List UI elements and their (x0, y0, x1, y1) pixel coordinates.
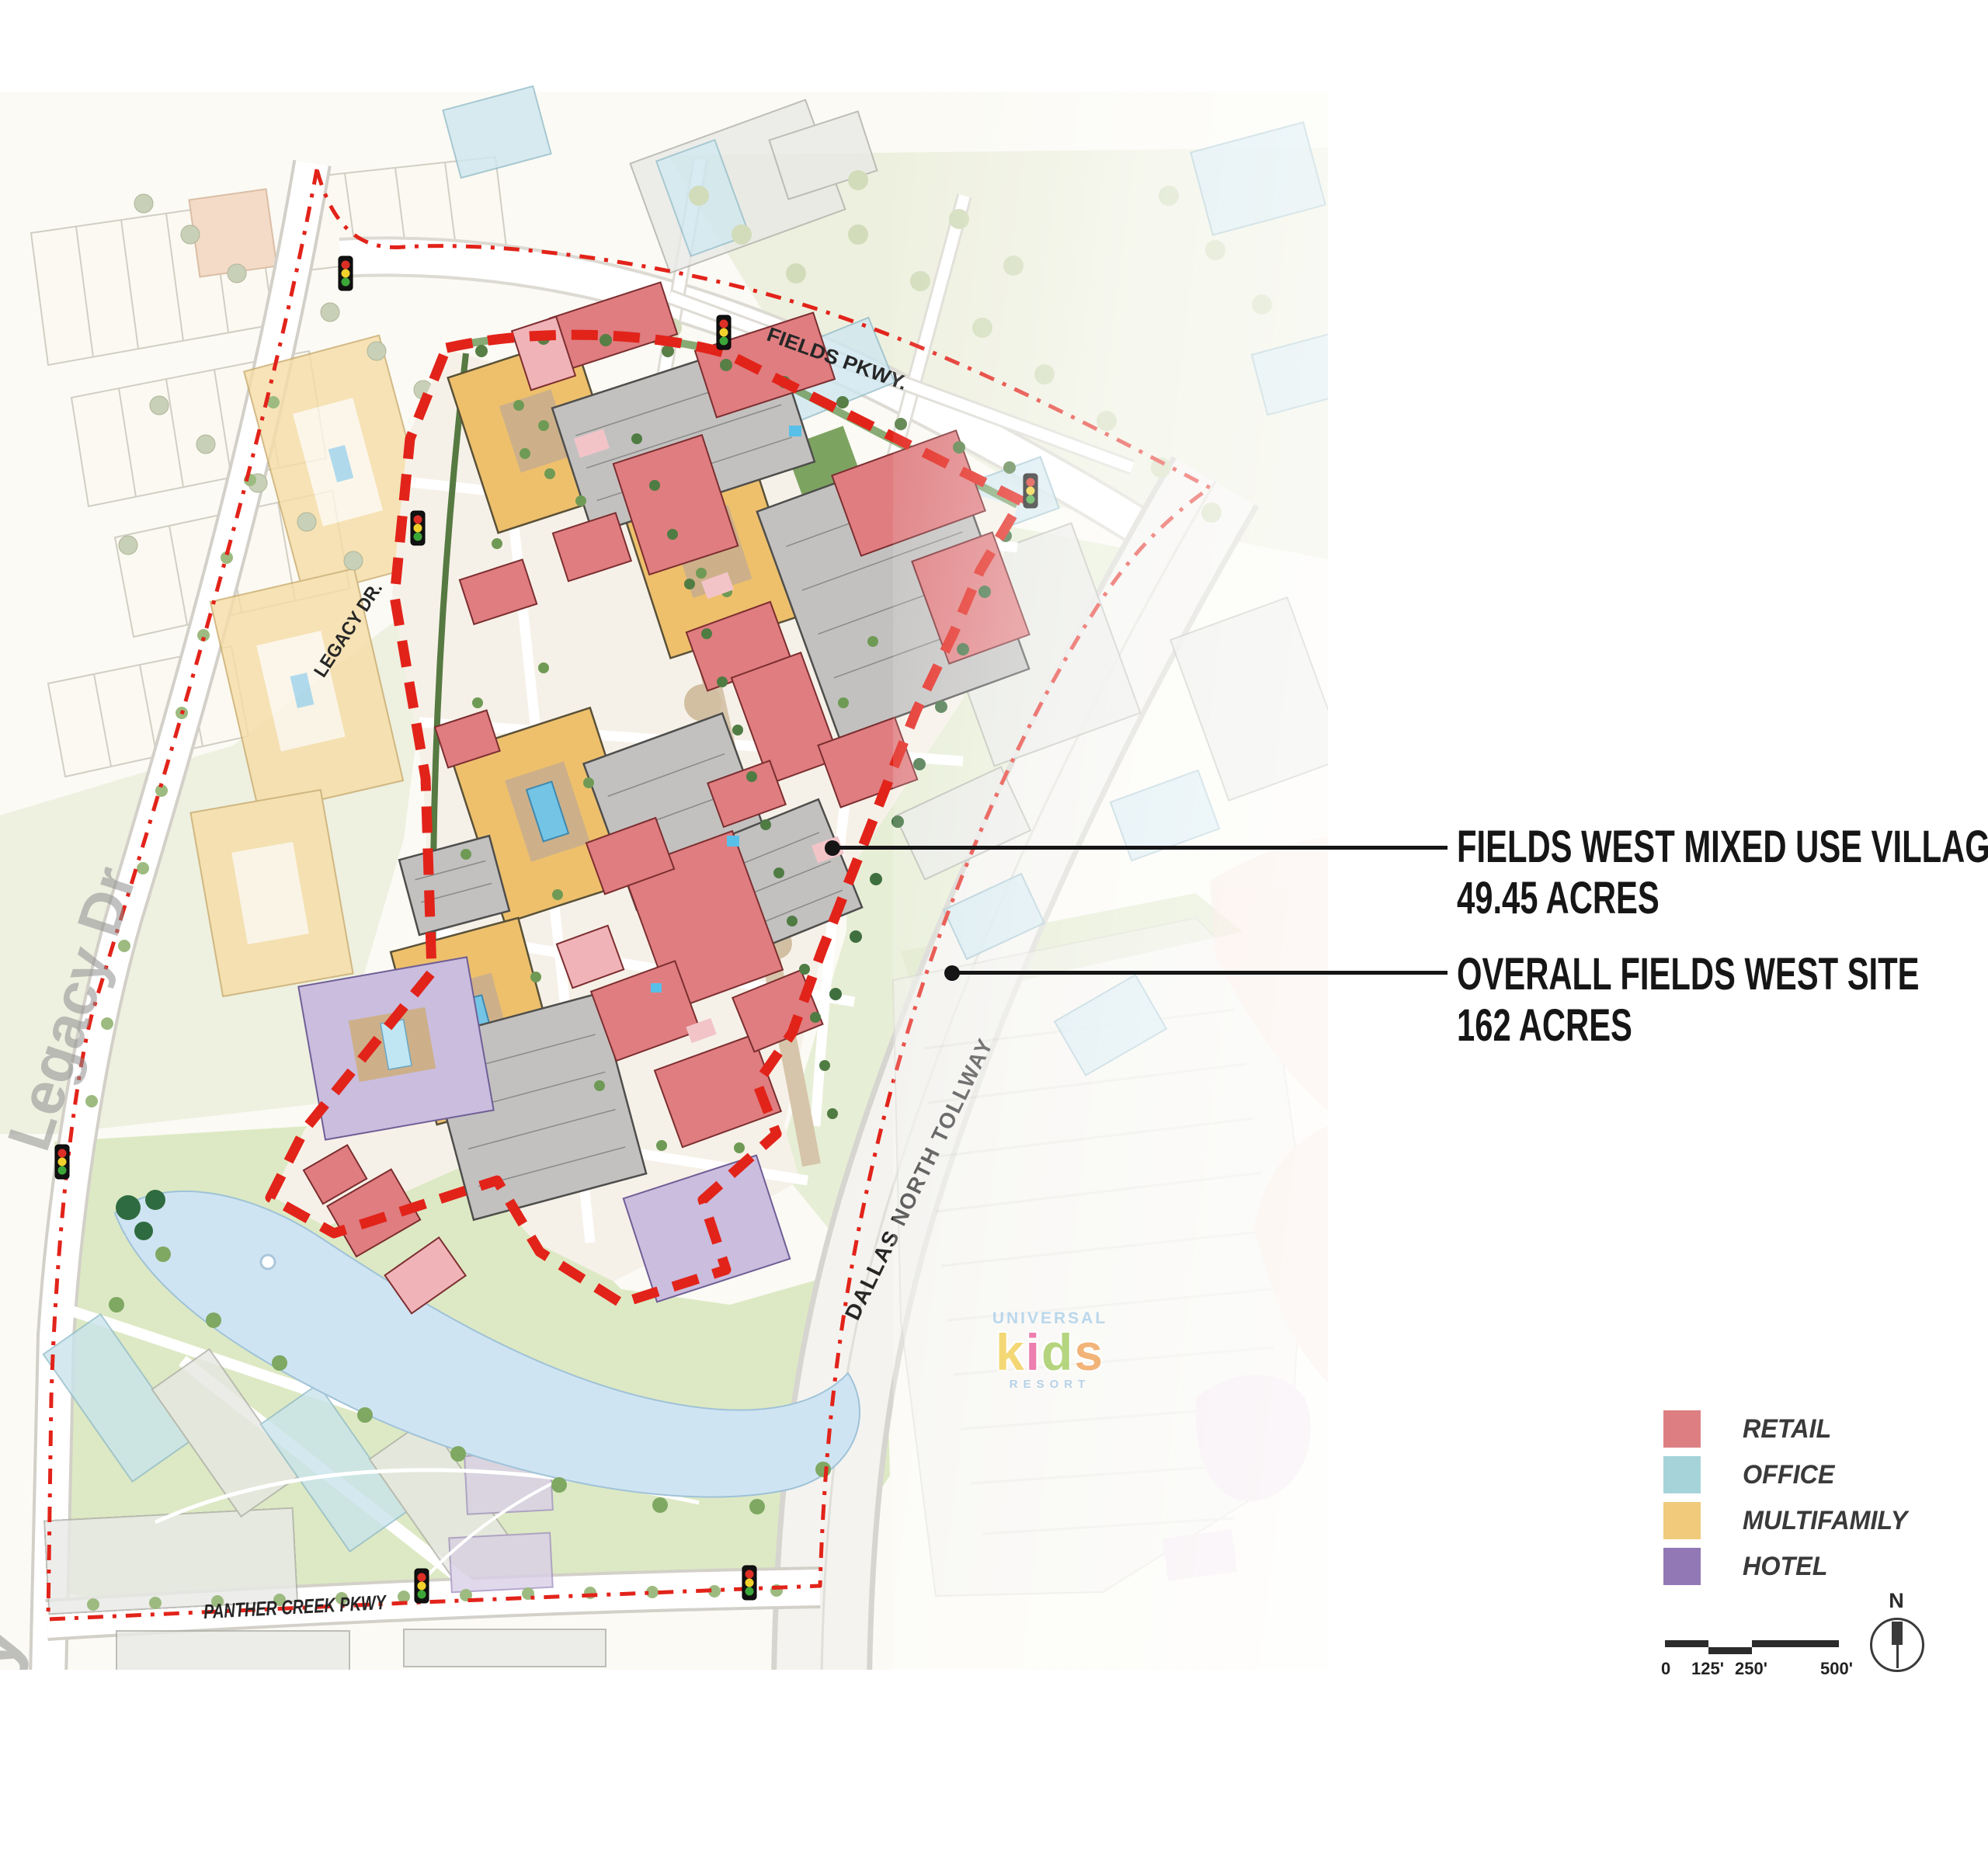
logo-letter: s (1074, 1323, 1104, 1381)
logo-letter: d (1041, 1323, 1074, 1381)
legend: RETAIL OFFICE MULTIFAMILY HOTEL (1663, 1410, 1916, 1594)
north-arrow-icon (1870, 1618, 1924, 1672)
legend-swatch-hotel (1663, 1548, 1701, 1585)
legend-label-office: OFFICE (1743, 1460, 1834, 1490)
traffic-light-icon (742, 1566, 756, 1600)
legend-item-hotel: HOTEL (1663, 1548, 1916, 1585)
callout-overall-title: OVERALL FIELDS WEST SITE (1457, 949, 1920, 1000)
page: Legacy Dr y FIELDS PKWY. LEGACY DR. DALL… (0, 0, 1988, 1860)
scale-tick-500: 500' (1820, 1659, 1853, 1679)
traffic-light-icon (717, 315, 731, 349)
legend-swatch-multifamily (1663, 1502, 1701, 1539)
legend-label-retail: RETAIL (1743, 1414, 1831, 1445)
north-label: N (1870, 1589, 1923, 1613)
traffic-light-icon (55, 1145, 69, 1179)
callout-village: FIELDS WEST MIXED USE VILLAGE 49.45 ACRE… (1457, 822, 1988, 924)
leader-line-overall (951, 971, 1448, 975)
logo-letter: k (996, 1323, 1026, 1381)
leader-line-village (831, 846, 1448, 850)
leader-dot-village (825, 840, 840, 856)
scale-bar-labels: 0 125' 250' 500' (1665, 1659, 1839, 1682)
fountain (261, 1255, 275, 1269)
legend-swatch-retail (1663, 1410, 1701, 1448)
scale-bar-top-row (1665, 1640, 1839, 1647)
legend-item-multifamily: MULTIFAMILY (1663, 1502, 1916, 1539)
callout-overall-acreage: 162 ACRES (1457, 1000, 1920, 1052)
legend-item-office: OFFICE (1663, 1456, 1916, 1493)
scale-tick-250: 250' (1735, 1659, 1767, 1679)
scale-tick-0: 0 (1661, 1659, 1670, 1679)
leader-dot-overall (944, 965, 960, 981)
scale-bar-bottom-row (1665, 1647, 1839, 1654)
universal-kids-resort-logo: UNIVERSAL kids RESORT (972, 1309, 1128, 1391)
logo-word: kids (972, 1328, 1128, 1376)
callout-overall: OVERALL FIELDS WEST SITE 162 ACRES (1457, 949, 1988, 1052)
callout-village-title: FIELDS WEST MIXED USE VILLAGE (1457, 822, 1988, 873)
legend-swatch-office (1663, 1456, 1701, 1493)
traffic-light-icon (415, 1569, 429, 1603)
callout-village-acreage: 49.45 ACRES (1457, 873, 1988, 924)
traffic-light-icon (339, 256, 353, 290)
scale-bar: 0 125' 250' 500' (1665, 1640, 1839, 1682)
legend-label-multifamily: MULTIFAMILY (1743, 1506, 1907, 1536)
legend-label-hotel: HOTEL (1743, 1552, 1827, 1582)
legend-item-retail: RETAIL (1663, 1410, 1916, 1448)
scale-tick-125: 125' (1691, 1659, 1724, 1679)
traffic-light-icon (411, 511, 425, 545)
traffic-light-icon (1024, 474, 1037, 508)
site-plan-map: Legacy Dr y FIELDS PKWY. LEGACY DR. DALL… (0, 0, 1328, 1860)
logo-letter: i (1026, 1323, 1041, 1381)
north-arrow: N (1870, 1589, 1923, 1672)
